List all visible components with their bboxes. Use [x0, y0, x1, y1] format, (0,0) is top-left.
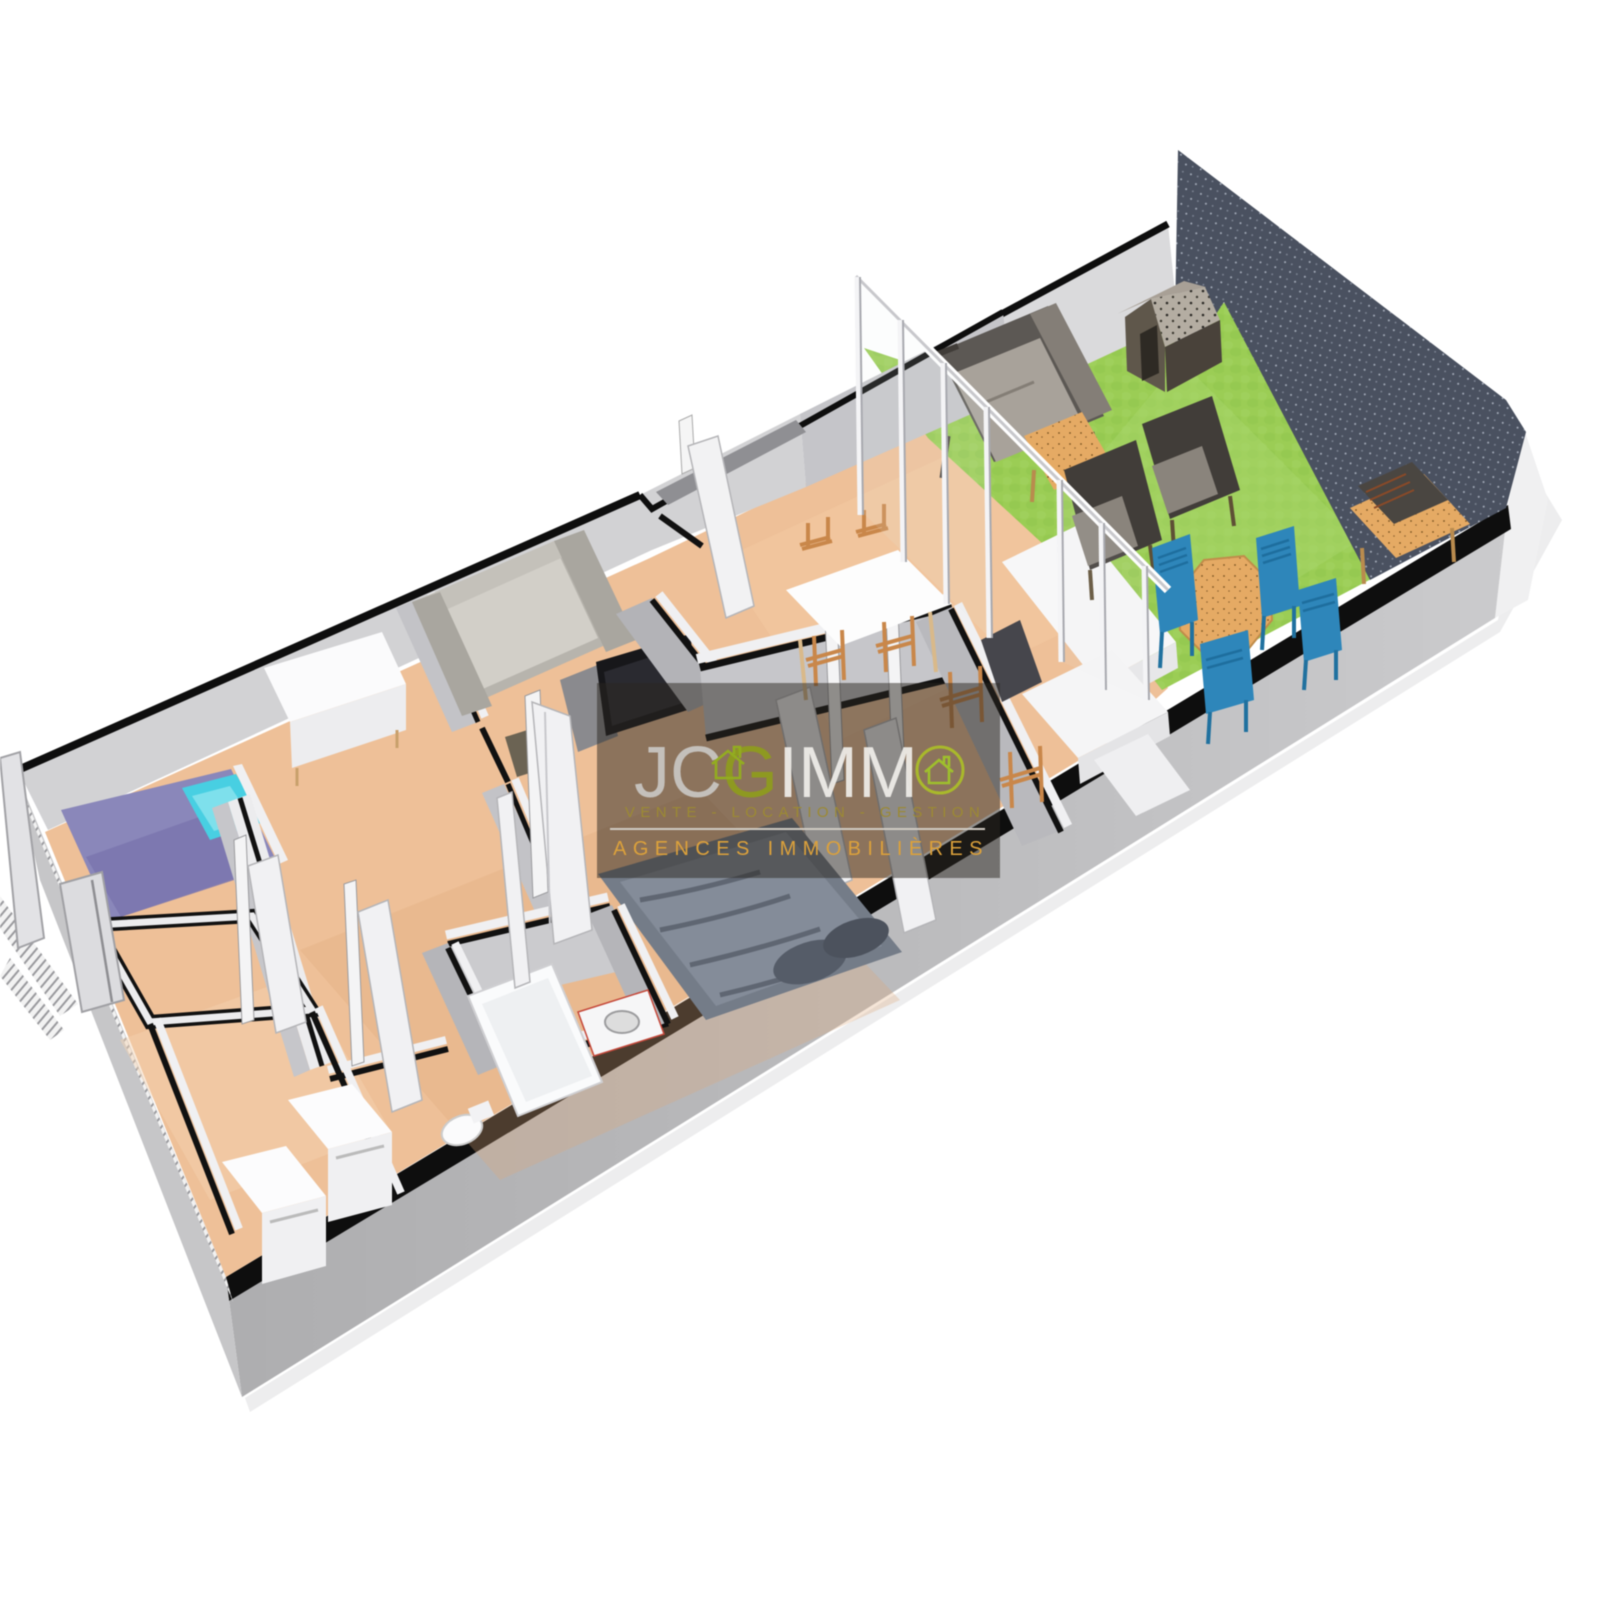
- svg-text:JCGIMM: JCGIMM: [634, 733, 918, 813]
- svg-text:VENTE - LOCATION - GESTION: VENTE - LOCATION - GESTION: [625, 804, 985, 821]
- svg-text:AGENCES IMMOBILIÈRES: AGENCES IMMOBILIÈRES: [613, 837, 989, 860]
